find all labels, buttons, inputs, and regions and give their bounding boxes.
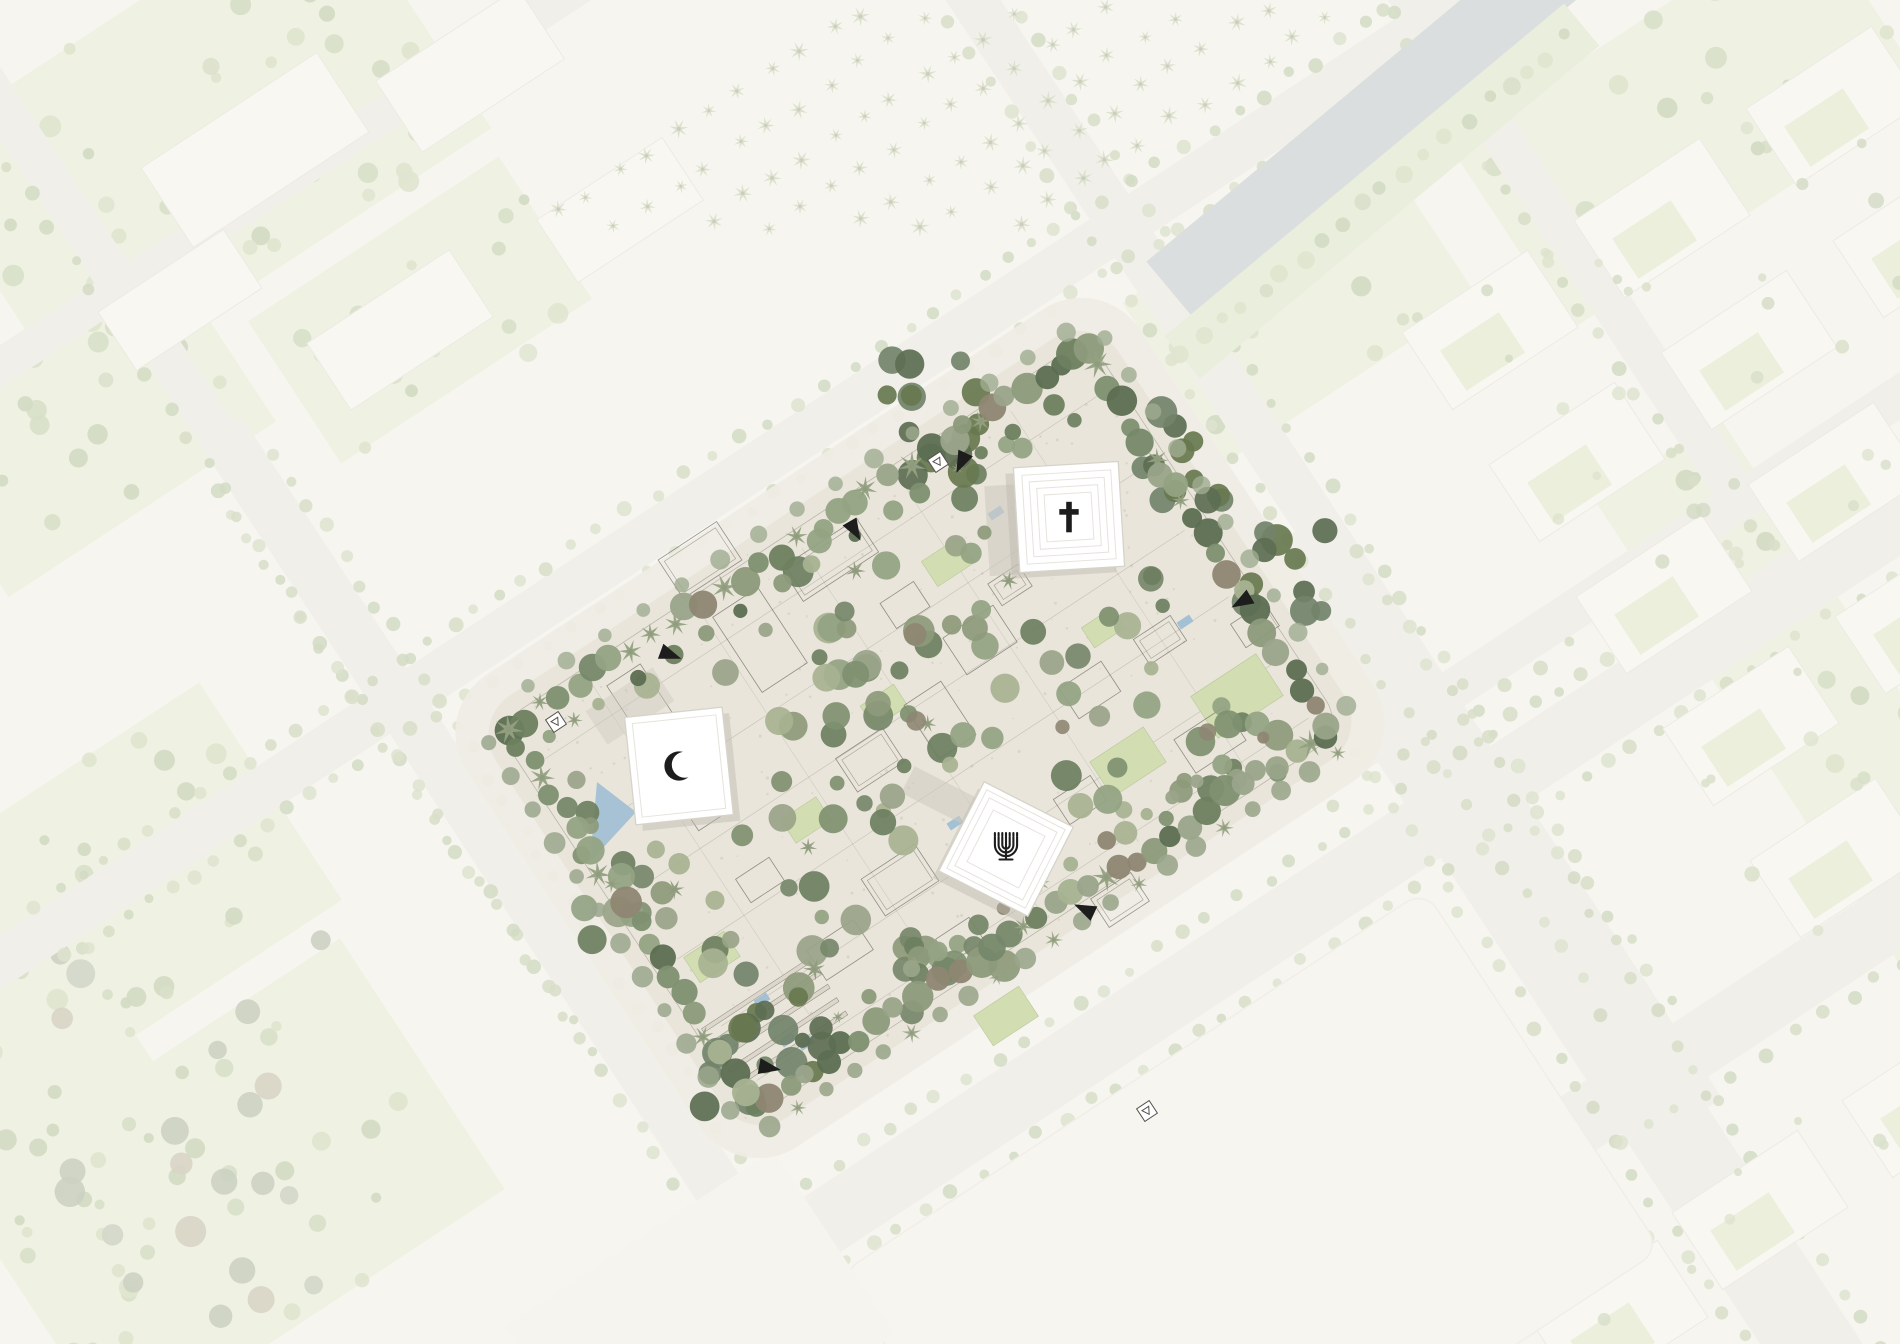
- mosque-building: [625, 707, 741, 831]
- site-plan: [0, 0, 1900, 1344]
- church-building: [1005, 461, 1124, 578]
- masterplan-svg: [0, 0, 1900, 1344]
